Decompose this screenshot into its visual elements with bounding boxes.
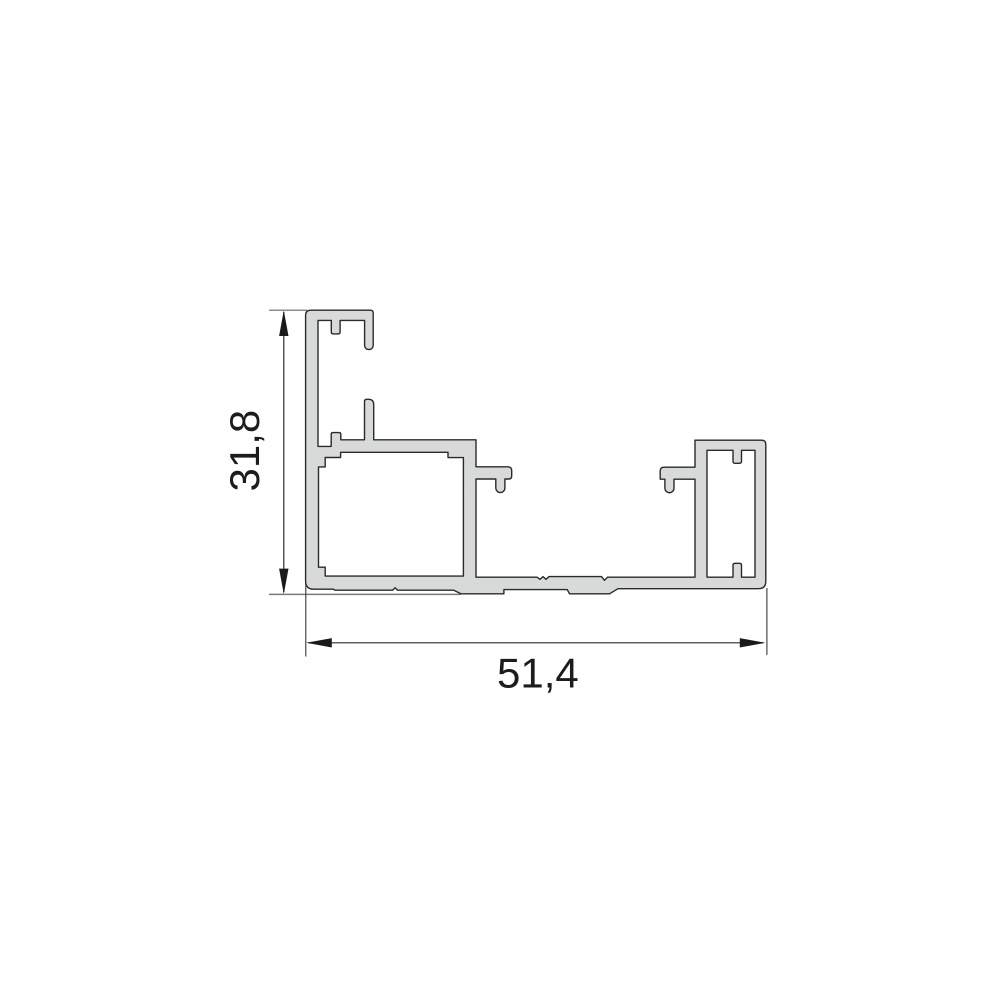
svg-text:31,8: 31,8 (221, 410, 268, 492)
svg-text:51,4: 51,4 (497, 650, 579, 697)
